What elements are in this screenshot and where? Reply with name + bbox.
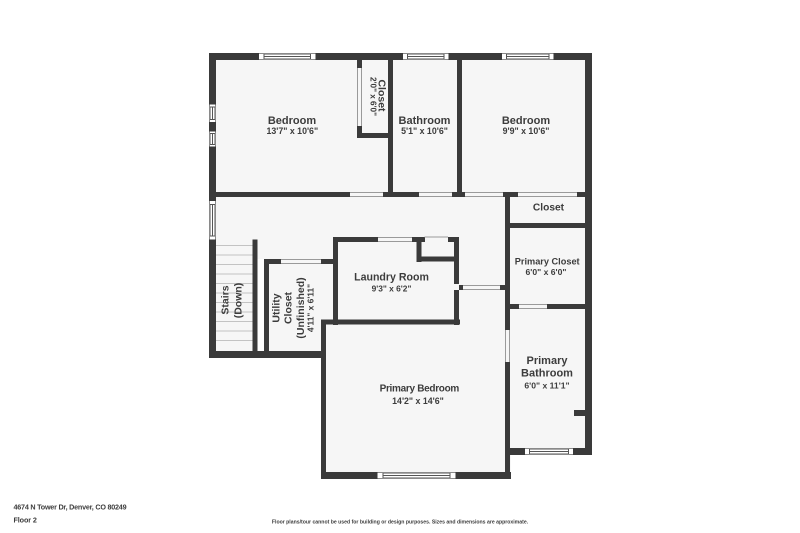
svg-text:Floor 2: Floor 2 (14, 516, 37, 525)
svg-text:Primary: Primary (527, 355, 569, 367)
svg-text:9'3" x 6'2": 9'3" x 6'2" (372, 284, 412, 294)
svg-text:Primary Bedroom: Primary Bedroom (380, 383, 460, 394)
svg-text:Laundry Room: Laundry Room (354, 272, 429, 284)
svg-text:14'2" x 14'6": 14'2" x 14'6" (392, 396, 444, 406)
svg-text:2'0" x 6'0": 2'0" x 6'0" (369, 77, 378, 116)
svg-text:6'0" x 11'1": 6'0" x 11'1" (524, 381, 569, 391)
svg-text:6'0" x 6'0": 6'0" x 6'0" (526, 267, 567, 277)
svg-text:Closet: Closet (282, 291, 294, 324)
svg-text:Floor plans/tour cannot be use: Floor plans/tour cannot be used for buil… (272, 519, 529, 525)
svg-text:4'11" x 6'11": 4'11" x 6'11" (306, 284, 316, 332)
svg-text:Closet: Closet (533, 203, 565, 214)
svg-text:4674 N Tower Dr, Denver, CO 80: 4674 N Tower Dr, Denver, CO 80249 (14, 503, 127, 512)
svg-text:(Down): (Down) (233, 283, 245, 319)
svg-text:Bathroom: Bathroom (521, 368, 573, 380)
svg-text:13'7" x 10'6": 13'7" x 10'6" (266, 126, 318, 136)
svg-text:Primary Closet: Primary Closet (515, 257, 580, 267)
svg-text:Utility: Utility (270, 293, 282, 322)
svg-text:Stairs: Stairs (220, 285, 232, 314)
svg-text:9'9" x 10'6": 9'9" x 10'6" (503, 126, 550, 136)
svg-text:5'1" x 10'6": 5'1" x 10'6" (401, 126, 448, 136)
